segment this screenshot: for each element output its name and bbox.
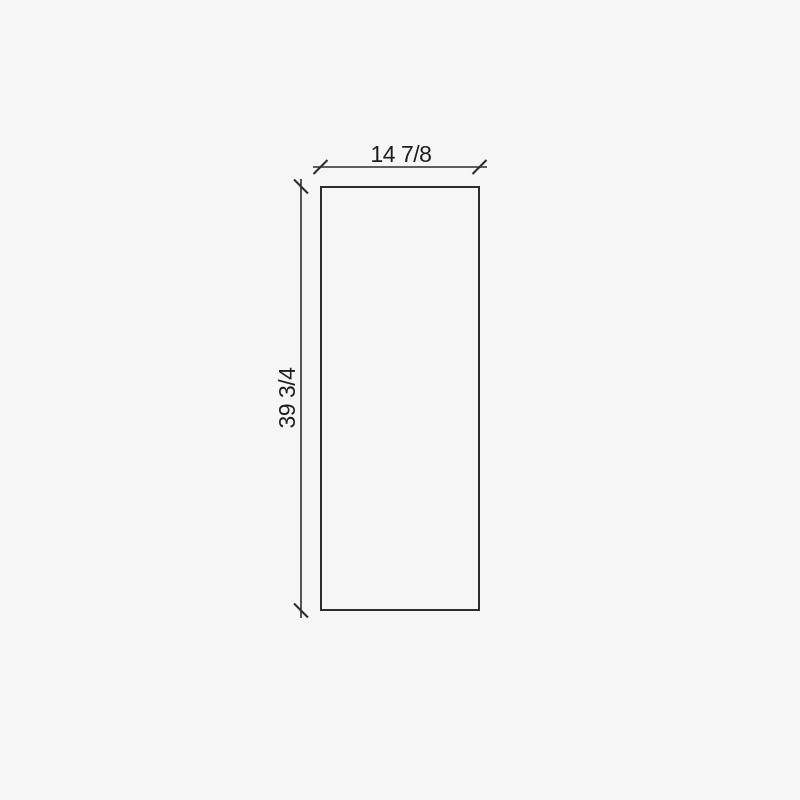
width-dimension: 14 7/8 bbox=[313, 141, 487, 174]
panel-outline bbox=[321, 187, 479, 610]
height-dimension: 39 3/4 bbox=[274, 179, 308, 618]
panel-dimension-drawing: 14 7/8 39 3/4 bbox=[0, 0, 800, 800]
drawing-canvas: 14 7/8 39 3/4 bbox=[0, 0, 800, 800]
height-dimension-label: 39 3/4 bbox=[274, 367, 300, 429]
width-dimension-label: 14 7/8 bbox=[371, 141, 432, 167]
